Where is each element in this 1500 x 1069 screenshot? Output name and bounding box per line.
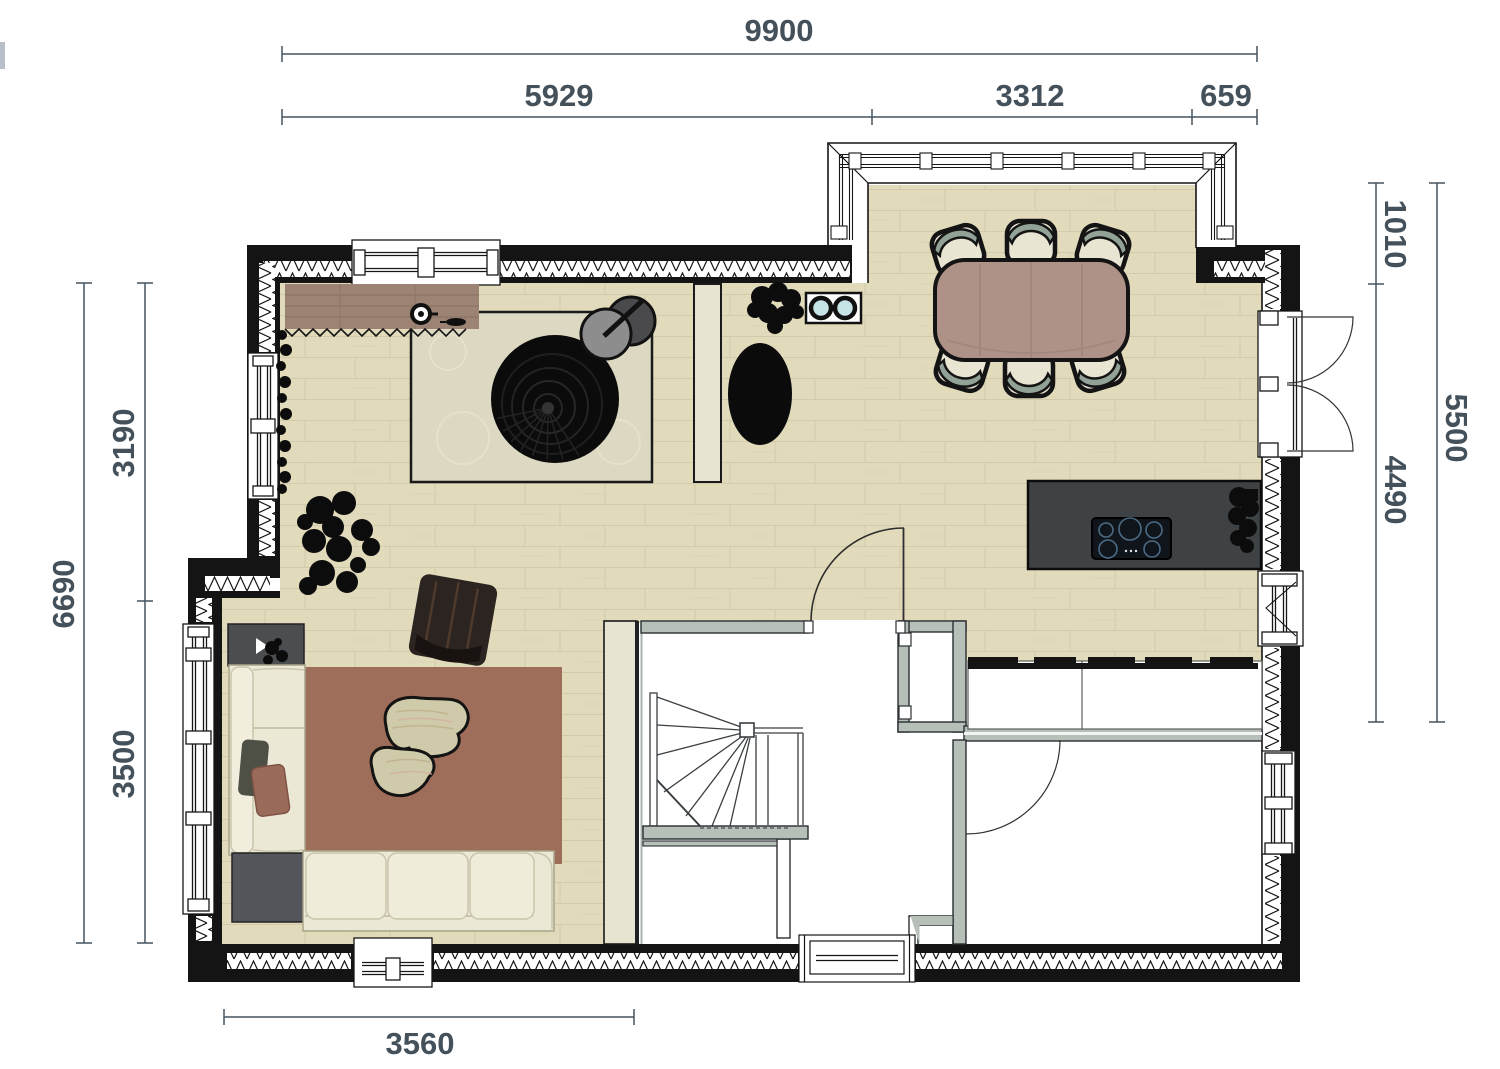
svg-text:3312: 3312 (996, 78, 1065, 113)
svg-text:3500: 3500 (106, 730, 141, 799)
svg-text:6690: 6690 (46, 560, 81, 629)
svg-text:5929: 5929 (525, 78, 594, 113)
svg-text:4490: 4490 (1378, 456, 1413, 525)
svg-text:9900: 9900 (745, 13, 814, 48)
svg-text:659: 659 (1200, 78, 1252, 113)
svg-text:1010: 1010 (1378, 200, 1413, 269)
svg-text:3190: 3190 (106, 409, 141, 478)
svg-text:5500: 5500 (1439, 394, 1474, 463)
svg-text:3560: 3560 (386, 1026, 455, 1061)
